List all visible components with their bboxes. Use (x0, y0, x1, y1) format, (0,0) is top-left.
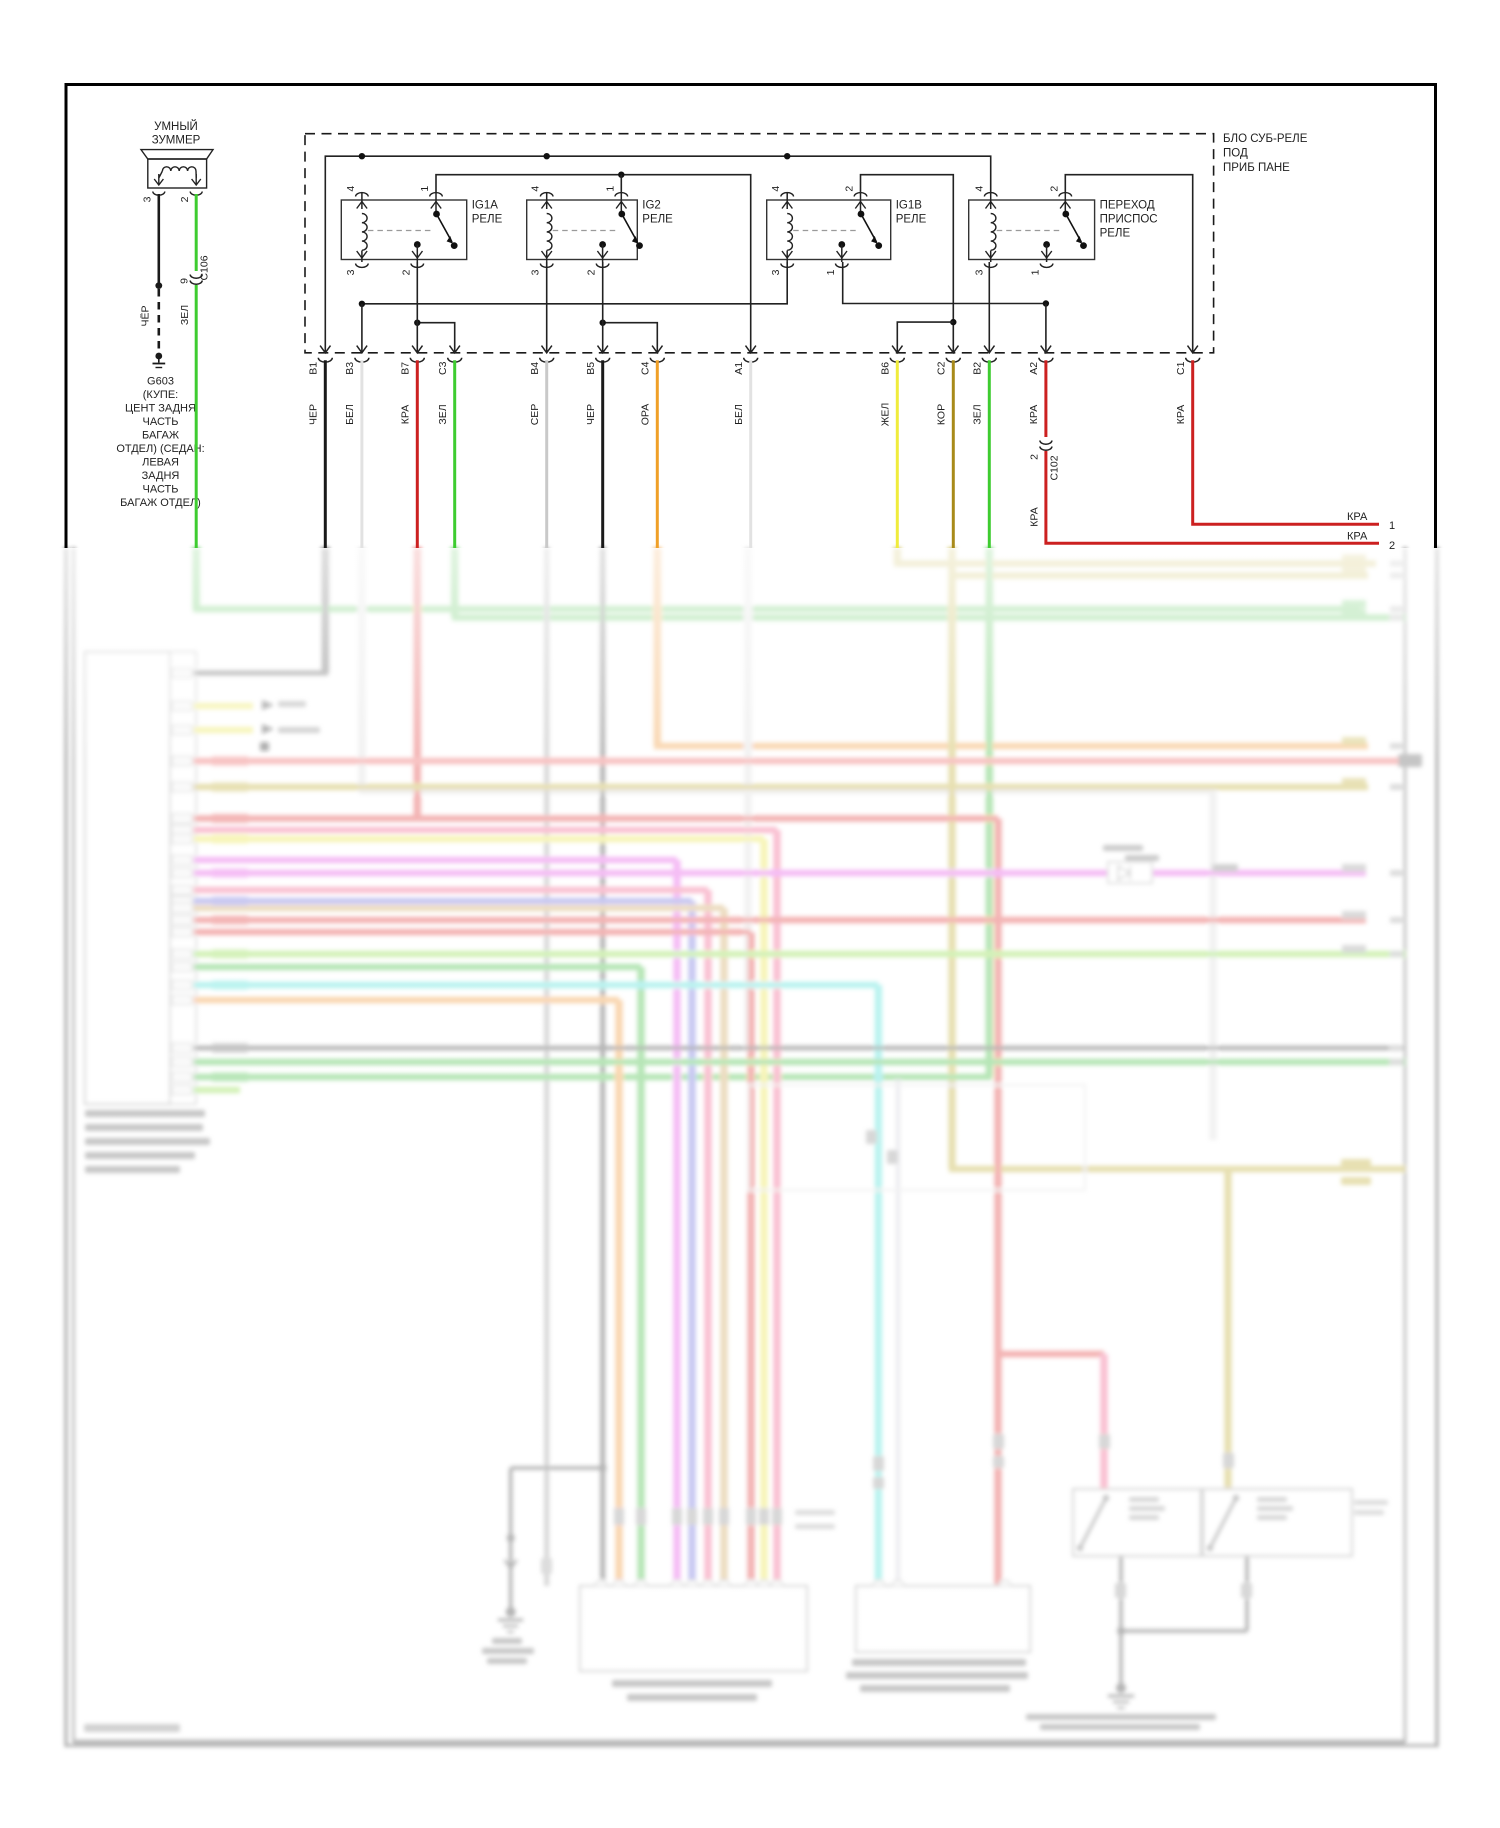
svg-text:B6: B6 (880, 362, 892, 375)
svg-text:4: 4 (345, 186, 357, 192)
svg-text:C2: C2 (936, 361, 948, 375)
svg-text:C4: C4 (640, 361, 652, 375)
svg-text:БЛО СУБ-РЕЛЕ: БЛО СУБ-РЕЛЕ (1223, 133, 1308, 145)
svg-text:ОТДЕЛ) (СЕДАН:: ОТДЕЛ) (СЕДАН: (116, 443, 204, 455)
svg-text:3: 3 (345, 269, 357, 275)
svg-text:IG2: IG2 (642, 200, 661, 212)
svg-text:ОРА: ОРА (640, 404, 652, 425)
svg-text:4: 4 (530, 186, 542, 192)
svg-text:БАГАЖ: БАГАЖ (142, 430, 179, 442)
svg-text:A2: A2 (1028, 362, 1040, 375)
svg-text:БЕЛ: БЕЛ (344, 404, 356, 425)
svg-text:ЗАДНЯ: ЗАДНЯ (142, 470, 180, 482)
svg-text:ЧАСТЬ: ЧАСТЬ (143, 484, 179, 496)
svg-text:1: 1 (1389, 520, 1395, 532)
svg-text:2: 2 (844, 186, 856, 192)
svg-text:ЗЕЛ: ЗЕЛ (179, 305, 191, 325)
svg-text:G603: G603 (147, 376, 174, 388)
svg-text:ПРИСПОС: ПРИСПОС (1100, 214, 1158, 226)
svg-text:1: 1 (419, 186, 431, 192)
svg-text:УМНЫЙ: УМНЫЙ (154, 120, 198, 133)
svg-text:РЕЛЕ: РЕЛЕ (1100, 228, 1131, 240)
svg-text:КРА: КРА (1175, 405, 1187, 424)
svg-text:B7: B7 (400, 362, 412, 375)
svg-text:СЕР: СЕР (529, 404, 541, 426)
svg-text:3: 3 (770, 269, 782, 275)
svg-text:3: 3 (530, 269, 542, 275)
svg-text:(КУПЕ:: (КУПЕ: (143, 389, 178, 401)
svg-text:БАГАЖ ОТДЕЛ): БАГАЖ ОТДЕЛ) (120, 497, 201, 509)
svg-text:B4: B4 (529, 362, 541, 375)
svg-text:B5: B5 (585, 362, 597, 375)
svg-text:ПРИБ ПАНЕ: ПРИБ ПАНЕ (1223, 162, 1290, 174)
svg-text:ЧЕР: ЧЕР (585, 404, 597, 425)
svg-text:1: 1 (604, 186, 616, 192)
svg-text:2: 2 (1389, 540, 1395, 552)
svg-text:ЗУММЕР: ЗУММЕР (152, 135, 201, 147)
svg-text:C3: C3 (437, 361, 449, 375)
svg-text:C106: C106 (199, 255, 211, 280)
svg-text:РЕЛЕ: РЕЛЕ (472, 214, 503, 226)
svg-text:3: 3 (974, 269, 986, 275)
svg-text:1: 1 (1030, 269, 1042, 275)
svg-text:1: 1 (825, 269, 837, 275)
svg-text:B1: B1 (308, 362, 320, 375)
svg-text:IG1B: IG1B (896, 200, 923, 212)
svg-text:ЧЁР: ЧЁР (140, 305, 152, 326)
svg-text:КРА: КРА (1028, 405, 1040, 424)
svg-text:2: 2 (400, 269, 412, 275)
svg-text:ЖЕЛ: ЖЕЛ (880, 403, 892, 427)
svg-text:4: 4 (974, 186, 986, 192)
svg-text:КРА: КРА (1029, 507, 1041, 526)
svg-text:2: 2 (1048, 186, 1060, 192)
svg-text:2: 2 (1029, 454, 1041, 460)
svg-text:ПЕРЕХОД: ПЕРЕХОД (1100, 200, 1155, 212)
svg-text:B2: B2 (972, 362, 984, 375)
svg-text:A1: A1 (733, 362, 745, 375)
svg-text:9: 9 (179, 278, 191, 284)
svg-text:РЕЛЕ: РЕЛЕ (642, 214, 673, 226)
svg-text:IG1A: IG1A (472, 200, 499, 212)
svg-text:B3: B3 (344, 362, 356, 375)
svg-text:4: 4 (770, 186, 782, 192)
svg-text:КРА: КРА (1347, 531, 1368, 543)
svg-text:ЧАСТЬ: ЧАСТЬ (143, 416, 179, 428)
svg-text:C1: C1 (1175, 361, 1187, 375)
svg-text:ЦЕНТ ЗАДНЯ: ЦЕНТ ЗАДНЯ (125, 403, 196, 415)
svg-text:ПОД: ПОД (1223, 148, 1248, 160)
svg-text:БЕЛ: БЕЛ (733, 404, 745, 425)
svg-text:РЕЛЕ: РЕЛЕ (896, 214, 927, 226)
svg-text:2: 2 (179, 196, 191, 202)
svg-text:ЛЕВАЯ: ЛЕВАЯ (142, 457, 179, 469)
svg-text:КОР: КОР (936, 404, 948, 425)
svg-text:C102: C102 (1049, 455, 1061, 480)
svg-text:2: 2 (586, 269, 598, 275)
svg-text:КРА: КРА (1347, 511, 1368, 523)
svg-text:КРА: КРА (400, 405, 412, 424)
svg-text:ЗЕЛ: ЗЕЛ (972, 404, 984, 424)
svg-text:ЗЕЛ: ЗЕЛ (437, 404, 449, 424)
svg-text:3: 3 (142, 196, 154, 202)
svg-text:ЧЕР: ЧЕР (308, 404, 320, 425)
